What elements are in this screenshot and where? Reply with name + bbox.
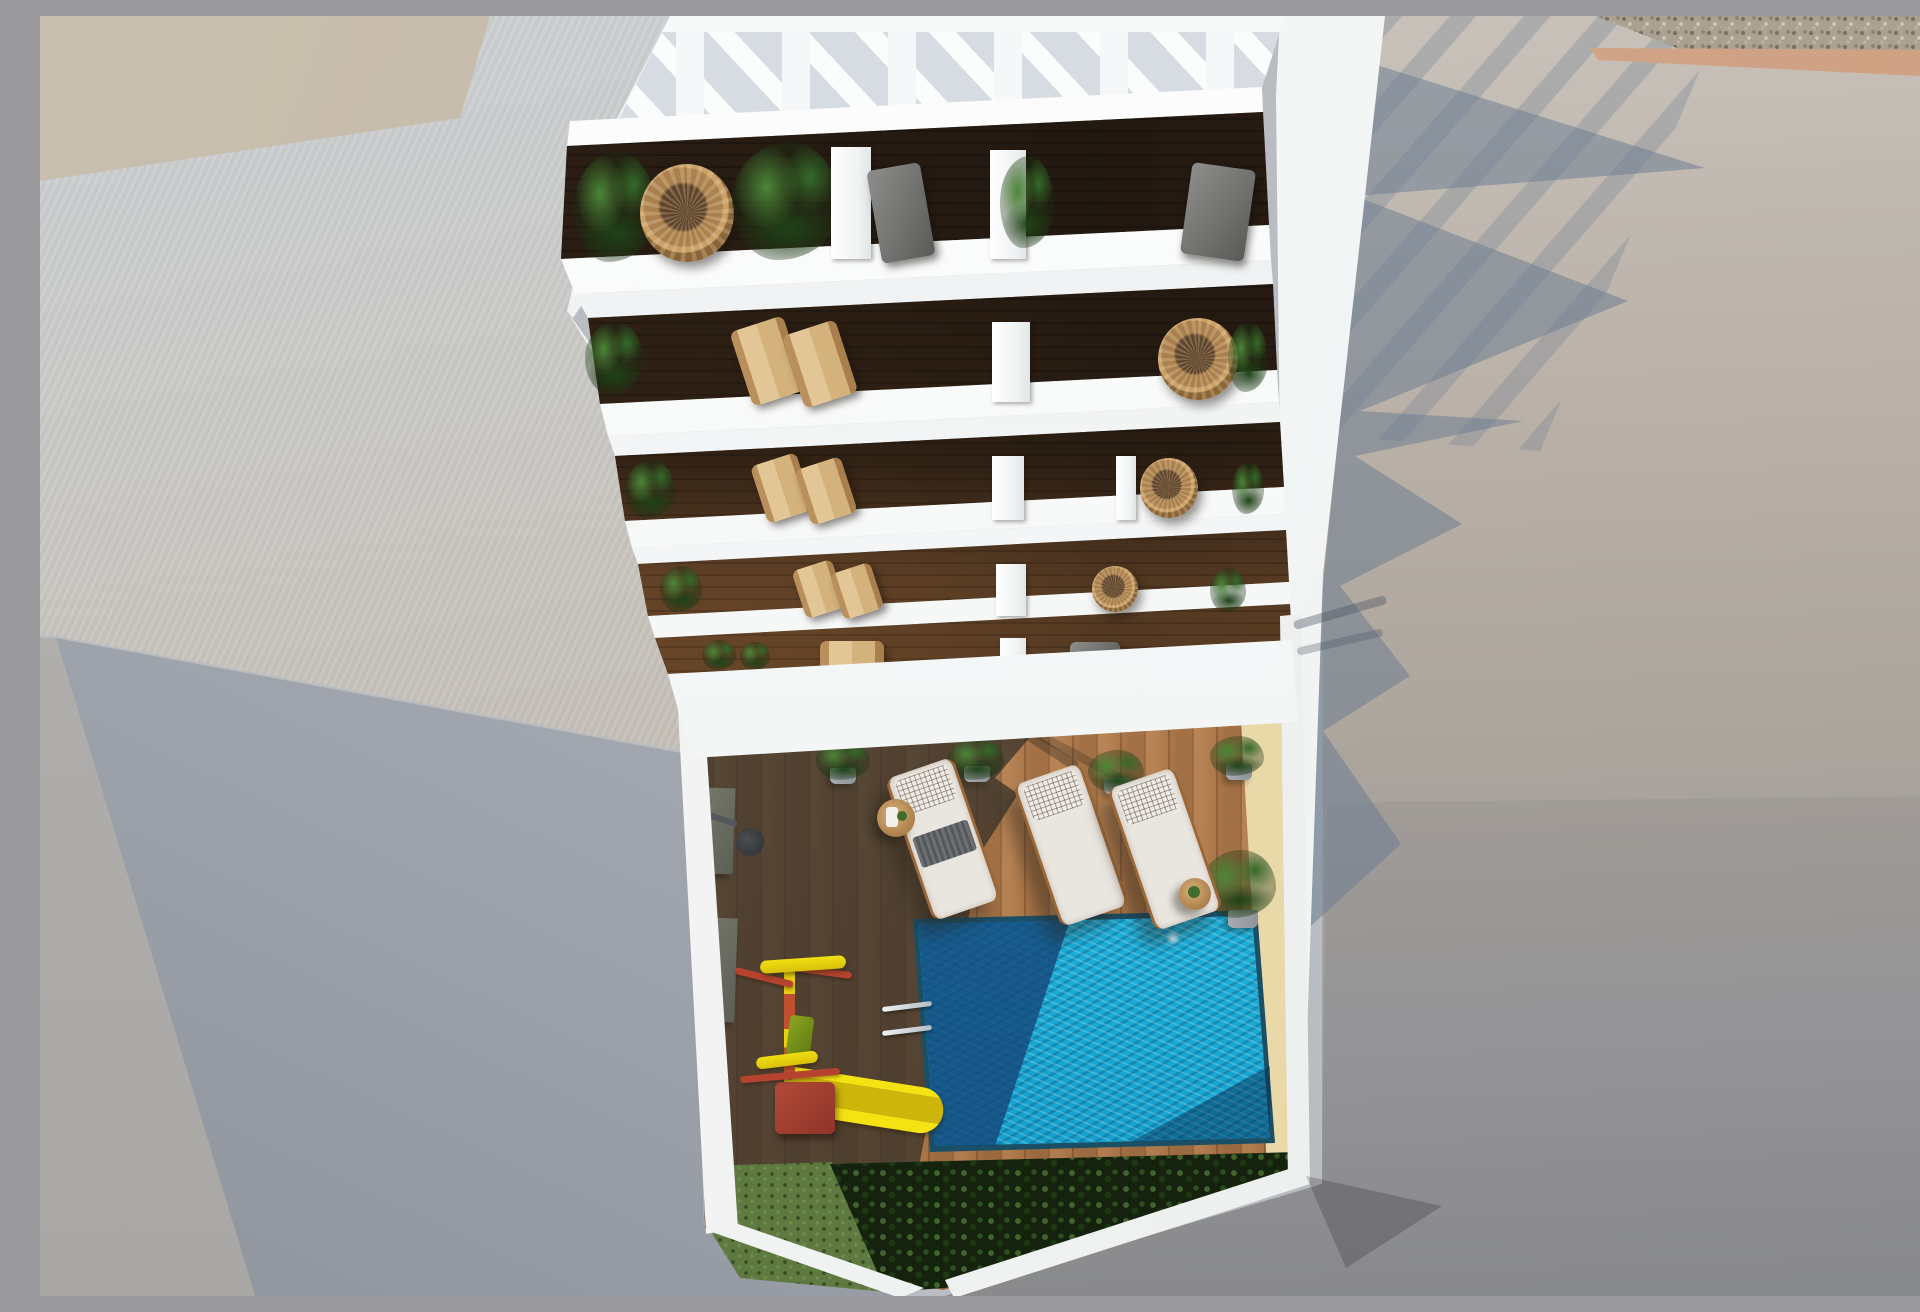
balcony-plant-5b xyxy=(740,642,770,670)
pool-light-reflection xyxy=(1164,932,1182,944)
slide-platform xyxy=(775,1082,835,1134)
table-sprig xyxy=(897,811,907,821)
side-table-1 xyxy=(877,799,915,837)
balcony-plant-5a xyxy=(702,640,736,670)
balcony-plant-4l xyxy=(660,566,702,612)
wicker-chair-3r xyxy=(1140,458,1198,518)
outdoor-shower-head xyxy=(736,828,764,856)
aerial-building-render: Aerial view of apartment building with p… xyxy=(40,16,1920,1296)
balcony-plant-3r xyxy=(1232,462,1264,514)
wicker-egg-chair xyxy=(640,164,734,262)
wicker-chair-4r xyxy=(1092,566,1138,612)
lounger-pillow xyxy=(1023,770,1086,822)
balcony-leaf-plant xyxy=(732,142,840,260)
potted-plant-4 xyxy=(1210,736,1264,776)
lounger-blanket xyxy=(912,819,977,868)
table-plant xyxy=(1188,886,1200,898)
balcony-plant-3l xyxy=(625,460,675,518)
balcony-plant-2l xyxy=(585,322,643,394)
wicker-chair-2r xyxy=(1158,318,1238,400)
deck-chair-1r xyxy=(1180,162,1256,262)
balcony-divider-2 xyxy=(992,322,1030,402)
balcony-divider-1a xyxy=(831,147,871,259)
side-table-2 xyxy=(1179,878,1211,910)
balcony-divider-3a xyxy=(992,456,1024,520)
balcony-plant-4r xyxy=(1210,568,1246,612)
balcony-divider-3b xyxy=(1116,456,1136,520)
balcony-plant-2r xyxy=(1228,322,1268,392)
balcony-plant-1r xyxy=(1000,156,1054,248)
lounger-pillow xyxy=(1117,774,1180,826)
balcony-divider-4 xyxy=(996,564,1026,616)
